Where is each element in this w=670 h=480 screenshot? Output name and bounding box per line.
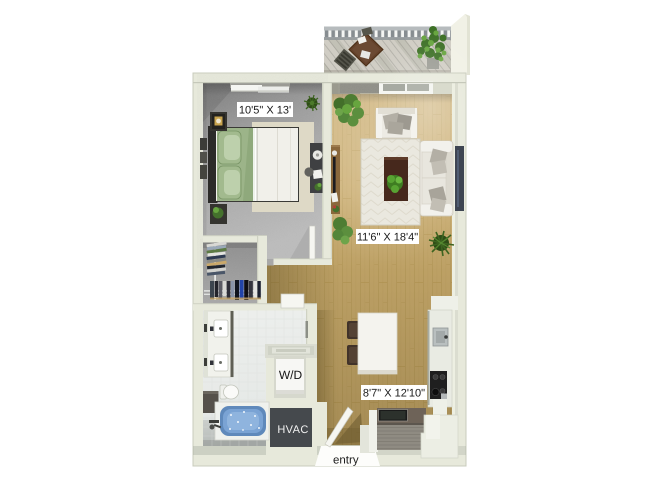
svg-text:HVAC: HVAC (277, 424, 308, 436)
svg-text:11'6" X 18'4": 11'6" X 18'4" (357, 232, 418, 244)
svg-text:8'7" X 12'10": 8'7" X 12'10" (363, 388, 425, 400)
svg-text:W/D: W/D (279, 368, 303, 382)
svg-text:10'5" X 13': 10'5" X 13' (239, 105, 291, 117)
svg-text:entry: entry (333, 455, 359, 467)
